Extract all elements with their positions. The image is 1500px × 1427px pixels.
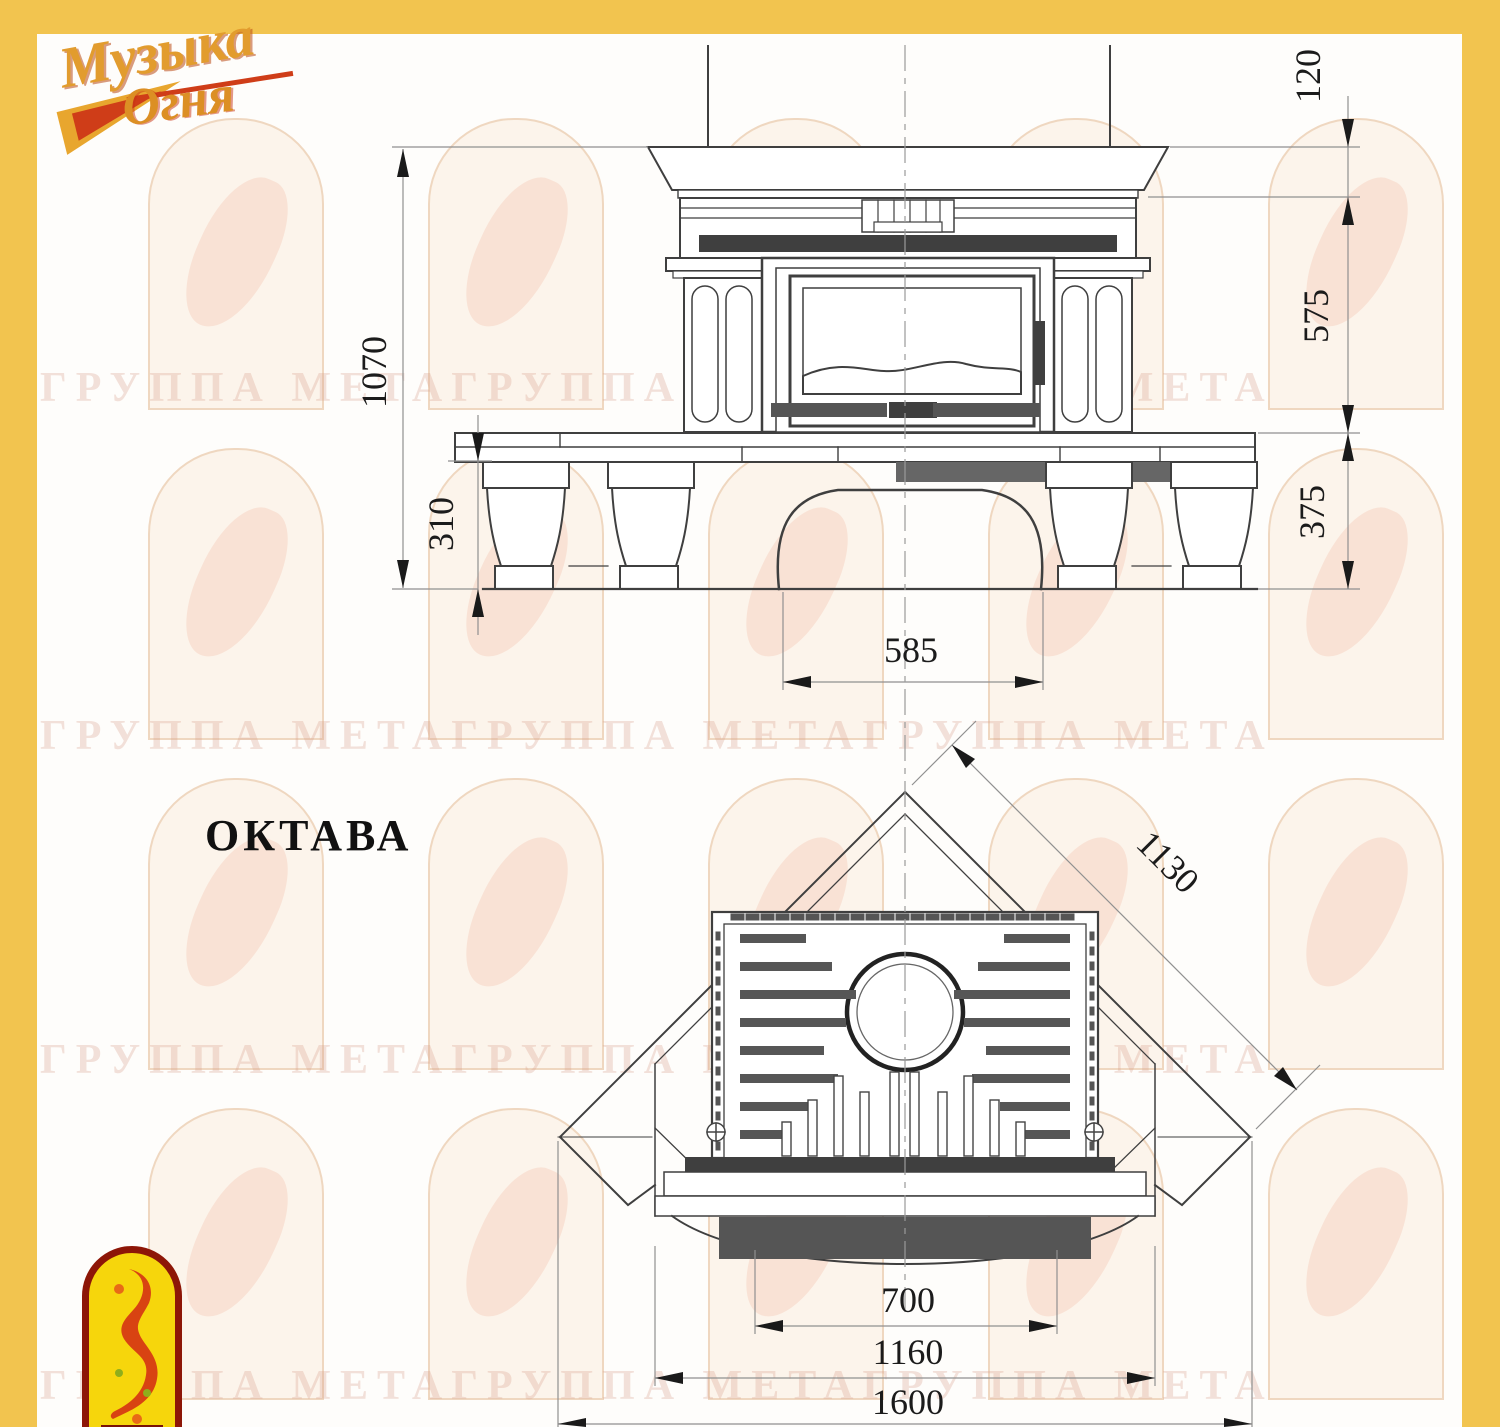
dim-label-overall-width: 1600 [872, 1381, 944, 1423]
frame-border-left [0, 0, 37, 1427]
dim-label-firebox-width: 700 [881, 1279, 935, 1321]
dim-label-total-height: 1070 [353, 336, 395, 408]
brand-logo: Музыка Огня [30, 10, 310, 160]
dim-label-mantel-thickness: 120 [1287, 49, 1329, 103]
firebird-emblem [82, 1246, 182, 1427]
dim-label-base-height: 375 [1291, 485, 1333, 539]
frame-border-right [1462, 0, 1500, 1427]
dim-label-plinth-height: 310 [420, 497, 462, 551]
model-title: ОКТАВА [205, 810, 412, 861]
technical-drawing-svg [0, 0, 1500, 1427]
dim-label-middle-height: 575 [1295, 289, 1337, 343]
firebird-icon [89, 1253, 175, 1427]
dim-label-front-width: 1160 [873, 1331, 944, 1373]
front-elevation-linework [455, 46, 1257, 589]
dim-label-arch-width: 585 [884, 629, 938, 671]
fireplace-drawing-page: ГРУППА МЕТАГРУППА МЕТАГРУППА МЕТА ГРУППА… [0, 0, 1500, 1427]
